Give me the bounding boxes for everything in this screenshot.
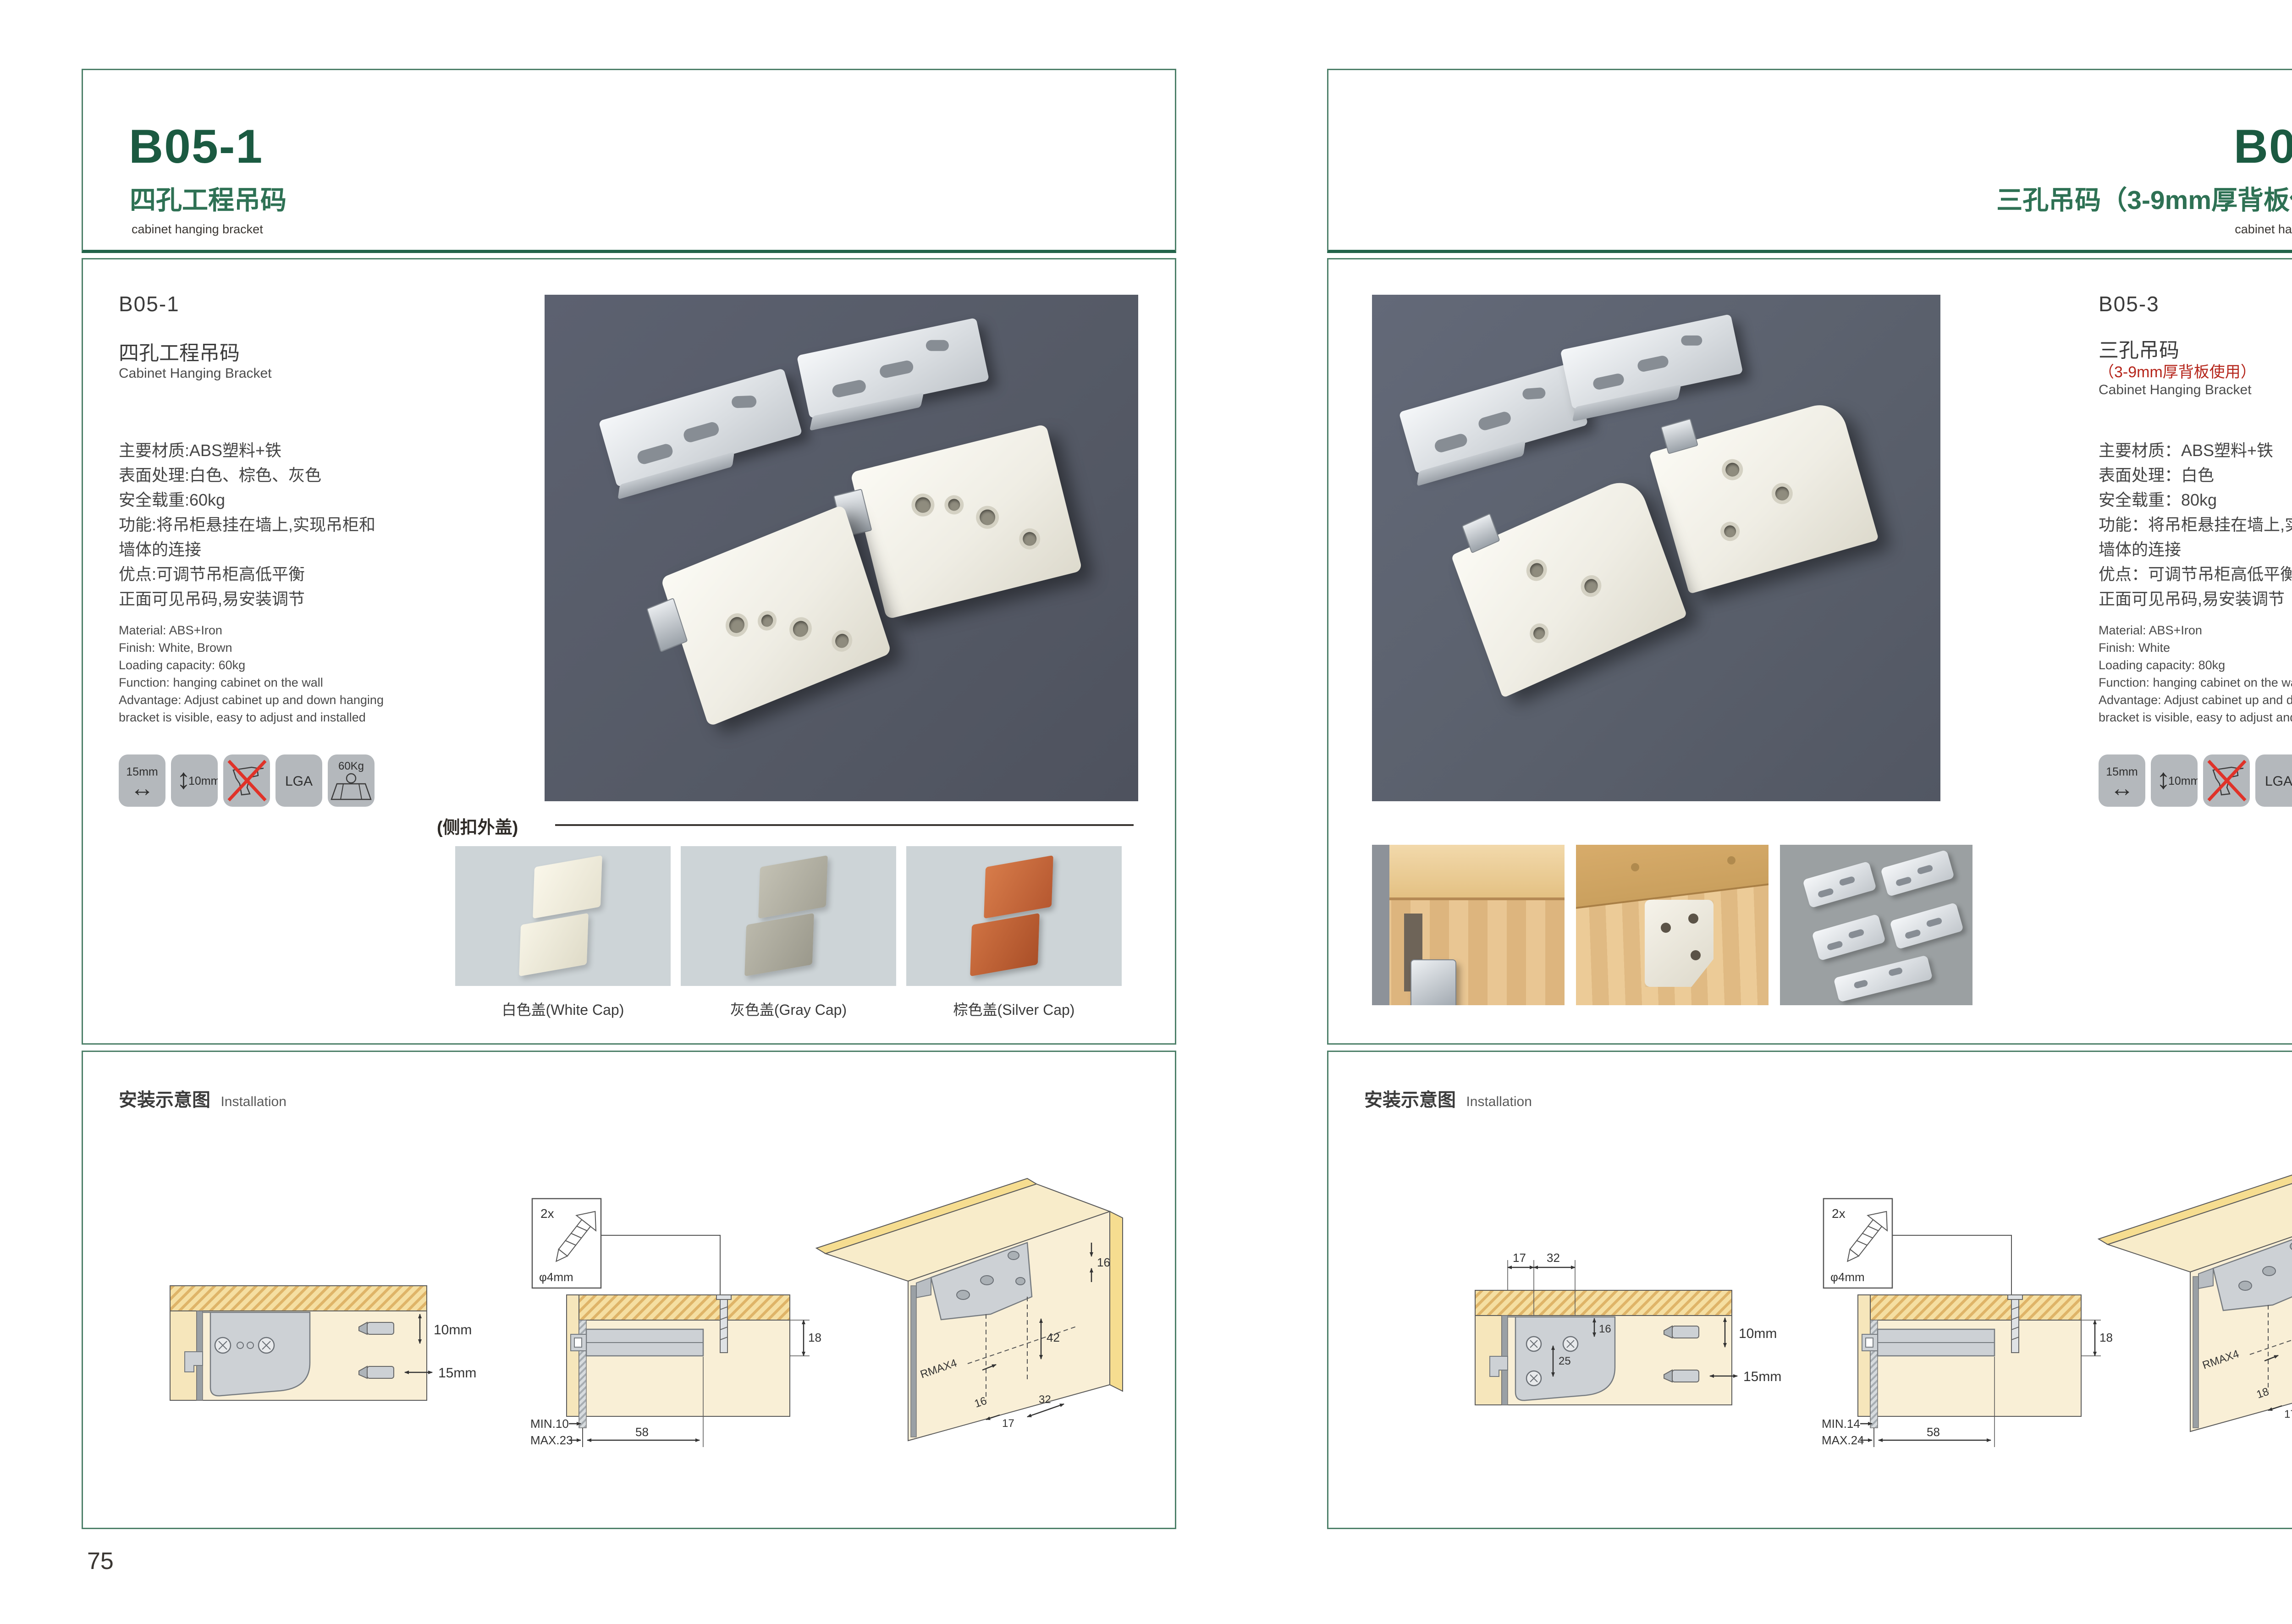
horizontal-arrow-icon: ↔ xyxy=(119,775,165,802)
left-header-title-cn: 四孔工程吊码 xyxy=(130,179,286,217)
installation-title-cn: 安装示意图 xyxy=(119,1090,210,1110)
spec-line: Advantage: Adjust cabinet up and down ha… xyxy=(119,691,531,709)
load-60kg-icon: 60Kg xyxy=(328,754,375,807)
icon-label: 10mm xyxy=(188,775,218,788)
metal-plate xyxy=(1560,314,1743,409)
white-bracket-block xyxy=(1451,473,1687,698)
right-product-name-en: Cabinet Hanging Bracket xyxy=(2099,382,2252,398)
width-15mm-icon: 15mm ↔ xyxy=(2099,754,2145,807)
no-drill-icon xyxy=(2203,754,2250,807)
lga-icon: LGA xyxy=(2255,754,2292,807)
right-diagram-3d: 16 42 RMAX4 18 17 32 xyxy=(2053,1134,2292,1446)
dim-16: 16 xyxy=(1097,1255,1110,1269)
left-header-title-en: cabinet hanging bracket xyxy=(132,222,263,237)
spec-line: 表面处理：白色 xyxy=(2099,463,2292,488)
spec-line: 主要材质:ABS塑料+铁 xyxy=(119,438,522,463)
cap-label: 棕色盖(Silver Cap) xyxy=(906,998,1122,1019)
right-specs-cn: 主要材质：ABS塑料+铁 表面处理：白色 安全载重：80kg 功能：将吊柜悬挂在… xyxy=(2099,438,2292,611)
icon-label: LGA xyxy=(2255,774,2292,789)
page-right: B05-3 三孔吊码（3-9mm厚背板使用） cabinet hanging b… xyxy=(1245,0,2292,1624)
spec-line: 安全载重：80kg xyxy=(2099,488,2292,512)
lga-icon: LGA xyxy=(275,754,322,807)
metal-plate xyxy=(1399,363,1588,474)
right-product-note: （3-9mm厚背板使用） xyxy=(2099,359,2256,382)
spec-line: 优点:可调节吊柜高低平衡 xyxy=(119,562,522,587)
left-product-name-en: Cabinet Hanging Bracket xyxy=(119,366,272,381)
white-bracket-block xyxy=(1649,399,1879,594)
left-specs-cn: 主要材质:ABS塑料+铁 表面处理:白色、棕色、灰色 安全载重:60kg 功能:… xyxy=(119,438,522,611)
dim-15mm: 15mm xyxy=(1743,1369,1781,1384)
dim-max: MAX.23 xyxy=(530,1433,573,1447)
dim-58: 58 xyxy=(1927,1425,1940,1439)
dim-min: MIN.14 xyxy=(1822,1417,1860,1431)
installation-title-en: Installation xyxy=(220,1094,286,1109)
spec-line: Material: ABS+Iron xyxy=(2099,622,2292,639)
spec-line: 表面处理:白色、棕色、灰色 xyxy=(119,463,522,488)
white-cap-photo xyxy=(455,846,671,986)
spec-line: 功能:将吊柜悬挂在墙上,实现吊柜和 xyxy=(119,512,522,537)
dim-42: 42 xyxy=(1047,1331,1060,1344)
spec-line: 主要材质：ABS塑料+铁 xyxy=(2099,438,2292,463)
page-number-left: 75 xyxy=(87,1547,114,1575)
dim-min: MIN.10 xyxy=(530,1417,569,1431)
spec-line: 墙体的连接 xyxy=(2099,537,2292,562)
left-product-name-cn: 四孔工程吊码 xyxy=(119,336,240,366)
gray-cap-photo xyxy=(681,846,896,986)
spec-line: 正面可见吊码,易安装调节 xyxy=(119,587,522,611)
icon-label: LGA xyxy=(275,774,322,789)
spec-line: 优点：可调节吊柜高低平衡 xyxy=(2099,562,2292,587)
right-product-code: B05-3 xyxy=(2099,292,2160,316)
right-header-title-en: cabinet hanging bracket xyxy=(2235,222,2292,237)
spec-line: Advantage: Adjust cabinet up and down ha… xyxy=(2099,691,2292,709)
dim-17: 17 xyxy=(1513,1251,1526,1265)
cap-label: 灰色盖(Gray Cap) xyxy=(681,998,896,1019)
right-specs-en: Material: ABS+Iron Finish: White Loading… xyxy=(2099,622,2292,726)
left-product-code: B05-1 xyxy=(119,292,180,316)
spec-line: bracket is visible, easy to adjust and i… xyxy=(119,709,531,726)
spec-line: Loading capacity: 60kg xyxy=(119,656,531,674)
dim-32: 32 xyxy=(1547,1251,1560,1265)
height-10mm-icon: ↕ 10mm xyxy=(171,754,218,807)
silver-cap-photo xyxy=(906,846,1122,986)
white-bracket-block xyxy=(661,504,892,727)
left-specs-en: Material: ABS+Iron Finish: White, Brown … xyxy=(119,622,531,726)
right-content: B05-3 三孔吊码 （3-9mm厚背板使用） Cabinet Hanging … xyxy=(1327,258,2292,1045)
dim-10mm: 10mm xyxy=(1739,1326,1777,1341)
left-header-code: B05-1 xyxy=(129,120,263,174)
installation-title: 安装示意图 Installation xyxy=(1364,1085,1532,1112)
dim-17: 17 xyxy=(2284,1408,2292,1420)
dim-max: MAX.24 xyxy=(1822,1433,1864,1447)
spec-line: 安全载重:60kg xyxy=(119,488,522,512)
installation-title-cn: 安装示意图 xyxy=(1364,1090,1456,1110)
left-diagram-3d: 16 42 RMAX4 16 17 32 xyxy=(771,1144,1137,1455)
right-installation: 安装示意图 Installation 17 32 xyxy=(1327,1051,2292,1529)
right-diagram-section: 17 32 16 25 10mm 15mm xyxy=(1457,1231,1805,1419)
spec-line: Function: hanging cabinet on the wall xyxy=(119,674,531,691)
caps-section-label: (侧扣外盖) xyxy=(437,813,518,838)
spec-line: Function: hanging cabinet on the wall xyxy=(2099,674,2292,691)
spec-line: Finish: White, Brown xyxy=(119,639,531,656)
application-photo-clip xyxy=(1372,845,1565,1005)
spec-line: 正面可见吊码,易安装调节 xyxy=(2099,587,2292,611)
spec-line: Finish: White xyxy=(2099,639,2292,656)
no-drill-icon xyxy=(223,754,270,807)
left-content: B05-1 四孔工程吊码 Cabinet Hanging Bracket 主要材… xyxy=(82,258,1176,1045)
white-bracket-block xyxy=(850,424,1083,620)
spec-line: bracket is visible, easy to adjust and i… xyxy=(2099,709,2292,726)
left-installation: 安装示意图 Installation 10mm 15 xyxy=(82,1051,1176,1529)
screw-diameter: φ4mm xyxy=(539,1270,573,1284)
cap-label: 白色盖(White Cap) xyxy=(455,998,671,1019)
spec-line: Loading capacity: 80kg xyxy=(2099,656,2292,674)
right-header-code: B05-3 xyxy=(2234,120,2292,174)
left-product-photo xyxy=(545,295,1138,801)
dim-16: 16 xyxy=(1599,1323,1611,1335)
screw-diameter: φ4mm xyxy=(1830,1270,1865,1284)
right-product-photo xyxy=(1372,295,1940,801)
left-icon-row: 15mm ↔ ↕ 10mm LGA 60Kg xyxy=(119,754,375,807)
width-15mm-icon: 15mm ↔ xyxy=(119,754,165,807)
right-icon-row: 15mm ↔ ↕ 10mm LGA 80Kg xyxy=(2099,754,2292,807)
dim-10mm: 10mm xyxy=(434,1322,472,1338)
left-diagram-section: 10mm 15mm xyxy=(152,1254,500,1409)
page-left: B05-1 四孔工程吊码 cabinet hanging bracket B05… xyxy=(0,0,1245,1624)
screw-qty: 2x xyxy=(540,1206,554,1221)
caps-divider-line xyxy=(555,824,1134,826)
application-photo-plates xyxy=(1780,845,1972,1005)
right-header: B05-3 三孔吊码（3-9mm厚背板使用） cabinet hanging b… xyxy=(1327,69,2292,253)
installation-title-en: Installation xyxy=(1466,1094,1532,1109)
dim-17: 17 xyxy=(1002,1417,1014,1430)
spec-line: 功能：将吊柜悬挂在墙上,实现吊柜和 xyxy=(2099,512,2292,537)
metal-plate xyxy=(598,368,802,487)
dim-25: 25 xyxy=(1559,1355,1571,1367)
dim-58: 58 xyxy=(635,1425,649,1439)
spec-line: 墙体的连接 xyxy=(119,537,522,562)
dim-15mm: 15mm xyxy=(438,1365,476,1381)
horizontal-arrow-icon: ↔ xyxy=(2099,775,2145,802)
icon-label: 10mm xyxy=(2168,775,2198,788)
dim-32: 32 xyxy=(1039,1393,1051,1406)
left-header: B05-1 四孔工程吊码 cabinet hanging bracket xyxy=(82,69,1176,253)
height-10mm-icon: ↕ 10mm xyxy=(2151,754,2198,807)
installation-title: 安装示意图 Installation xyxy=(119,1085,286,1112)
right-header-title-cn: 三孔吊码（3-9mm厚背板使用） xyxy=(1996,179,2292,217)
spec-line: Material: ABS+Iron xyxy=(119,622,531,639)
screw-qty: 2x xyxy=(1832,1206,1846,1221)
metal-plate xyxy=(797,318,989,418)
application-photo-bracket xyxy=(1576,845,1769,1005)
right-product-name-cn: 三孔吊码 xyxy=(2099,334,2179,363)
